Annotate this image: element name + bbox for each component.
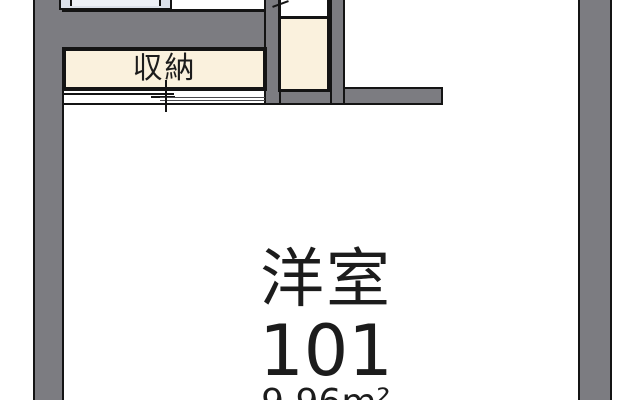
- wall-closet-right: [330, 0, 345, 105]
- fixture-inner: [70, 0, 161, 6]
- room-name: 洋室: [6, 248, 640, 312]
- sliding-door-panel-left: [64, 93, 174, 95]
- floorplan: 収納 洋室 101 9.96m²: [0, 0, 640, 400]
- fixture-box: [59, 0, 172, 10]
- wall-top: [62, 9, 264, 52]
- wall-entry: [345, 87, 443, 105]
- room-number: 101: [6, 316, 640, 386]
- sliding-door-panel-right: [160, 97, 265, 101]
- room-area: 9.96m²: [6, 385, 640, 400]
- small-closet: [278, 16, 330, 92]
- sliding-door-center-mark: [165, 80, 167, 112]
- wall-under-small-closet: [281, 92, 330, 105]
